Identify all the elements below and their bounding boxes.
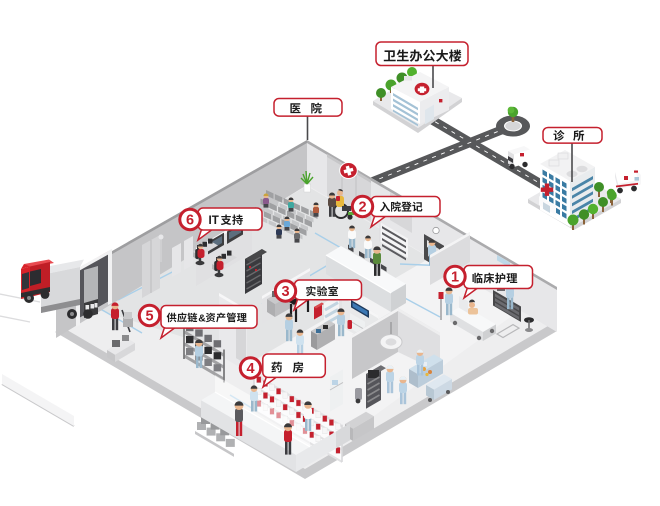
svg-text:&: & [198,313,206,324]
svg-text:2: 2 [358,200,366,216]
svg-text:5: 5 [145,309,153,325]
svg-text:6: 6 [186,213,194,229]
svg-text:4: 4 [246,361,254,377]
svg-text:3: 3 [281,284,289,300]
svg-text:IT: IT [209,214,219,227]
svg-text:1: 1 [451,270,459,286]
